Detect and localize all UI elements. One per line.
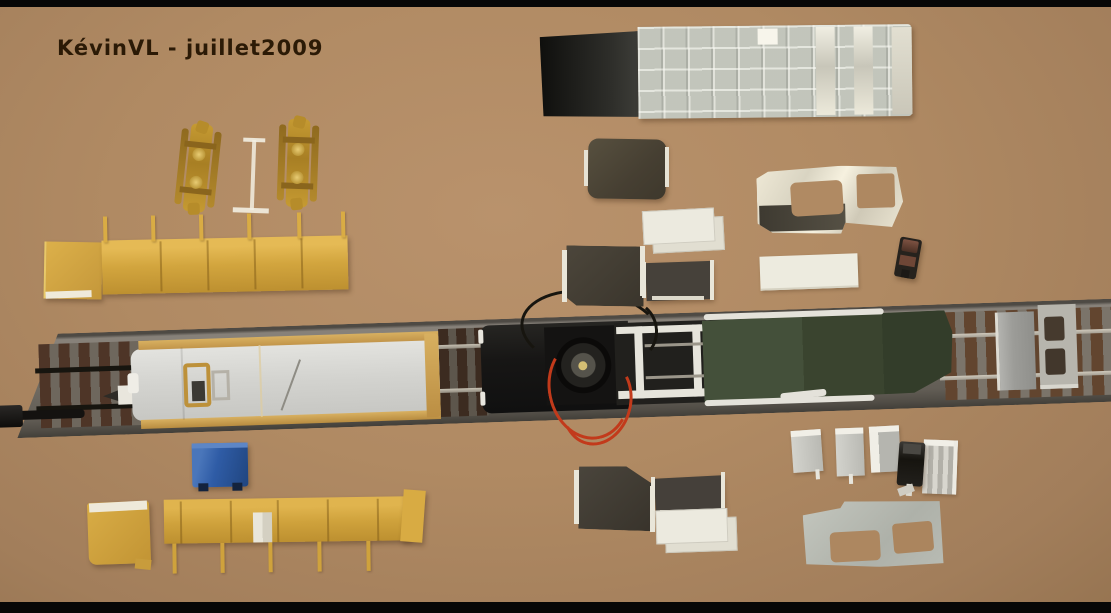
white-styrene-stack	[642, 207, 728, 257]
gauge-stem	[250, 140, 256, 210]
fence-panel-seam	[206, 240, 209, 290]
silver-cab-side	[756, 164, 904, 236]
roof-panel	[540, 24, 913, 120]
fence-post	[199, 214, 204, 240]
fence-post	[366, 541, 370, 571]
white-edge-strip	[652, 296, 704, 300]
wagon-floor	[138, 331, 441, 429]
bogie-coupler	[290, 197, 303, 210]
chassis-white-trim	[480, 392, 485, 406]
wagon-handle-opening	[192, 381, 206, 401]
white-gauge-mark	[232, 129, 275, 222]
fence-strip-bottom	[164, 496, 411, 543]
white-edge-strip	[721, 472, 725, 512]
fence-white-edge	[89, 501, 147, 513]
fence-post	[297, 212, 302, 238]
detail-part-black	[896, 441, 925, 487]
cab-window-cutout	[790, 180, 844, 217]
fence-panel-seam	[277, 500, 280, 542]
gray-platform-piece	[998, 311, 1037, 390]
white-edge-strip	[574, 470, 579, 524]
roof-bright-tile	[758, 28, 778, 44]
photo-canvas: KévinVL - juillet2009	[0, 0, 1111, 613]
cab-window-cutout	[892, 521, 934, 554]
wagon-silver-bracket	[211, 370, 230, 401]
fence-panel-seam	[253, 239, 256, 289]
masking-tape-end	[424, 333, 441, 417]
white-edge-strip	[710, 260, 714, 300]
dark-panel-offcut	[565, 245, 644, 306]
green-deck-panel	[702, 310, 955, 402]
wagon-nose-tip	[127, 373, 139, 393]
white-styrene-card	[642, 207, 716, 245]
bogie-body	[285, 119, 310, 208]
blue-block-top-edge	[192, 443, 248, 449]
roof-silver-band	[816, 27, 836, 115]
top-border-bar	[0, 0, 1111, 7]
white-styrene-plate	[759, 253, 858, 290]
step-bracket	[922, 439, 958, 494]
fence-post	[317, 542, 321, 572]
fence-panel-seam	[327, 499, 330, 541]
detail-part-cap	[903, 443, 922, 454]
step-bracket	[835, 428, 865, 477]
fence-post	[103, 216, 108, 242]
detail-part-leg	[901, 269, 910, 278]
white-edge-strip	[651, 477, 655, 511]
detail-part-red	[894, 236, 923, 279]
fence-strip-top	[101, 235, 348, 294]
detail-part-cap	[901, 239, 919, 254]
step-white-edge	[869, 425, 899, 433]
dark-roof-insert	[587, 138, 666, 199]
fence-panel-seam	[180, 501, 183, 543]
step-white-edge	[952, 440, 958, 494]
gray-cab-side	[802, 500, 943, 568]
fence-panel-seam	[159, 241, 162, 291]
fence-end-block-top	[44, 241, 103, 299]
roof-silver-band	[854, 26, 874, 114]
fence-panel-seam	[377, 499, 380, 541]
bogie-right	[274, 118, 321, 207]
fence-post	[341, 211, 346, 237]
chassis-white-trim	[478, 330, 483, 344]
blue-block-foot	[198, 483, 208, 491]
silver-grid-frame	[1038, 304, 1079, 389]
grid-frame-hole	[1045, 348, 1066, 375]
fence-post	[151, 215, 156, 241]
buffer-head	[0, 405, 23, 428]
bottom-border-bar	[0, 602, 1111, 613]
fence-white-insert	[253, 512, 272, 542]
step-bracket	[869, 425, 901, 473]
white-edge-strip	[584, 150, 588, 186]
cab-window-cutout	[856, 173, 895, 208]
fence-post	[247, 213, 252, 239]
step-leg	[815, 469, 820, 479]
white-edge-strip	[562, 250, 567, 302]
step-bracket	[791, 429, 824, 473]
fence-strip-end-flare	[400, 489, 426, 542]
white-edge-strip	[665, 147, 669, 187]
cab-window-cutout	[829, 530, 881, 563]
fence-white-edge	[45, 290, 91, 299]
fence-post	[220, 543, 224, 573]
watermark-text: KévinVL - juillet2009	[57, 36, 323, 60]
step-leg	[849, 474, 853, 484]
fence-end-block-bottom	[87, 501, 151, 565]
grid-frame-hole	[1044, 316, 1065, 341]
white-styrene-stack	[655, 508, 741, 557]
fence-panel-seam	[230, 501, 233, 543]
dark-panel-offcut	[577, 465, 655, 532]
bogie-coupler	[188, 203, 200, 215]
blue-component-block	[192, 443, 249, 488]
fence-post	[268, 542, 272, 572]
bogie-left	[172, 122, 225, 214]
white-styrene-card	[655, 508, 728, 544]
white-edge-strip	[642, 262, 646, 298]
roof-panel-dark-end	[540, 31, 643, 118]
fence-foot	[135, 558, 152, 570]
fence-post	[172, 544, 176, 574]
roof-end-cap	[892, 27, 913, 114]
step-white-edge	[835, 428, 863, 435]
detail-part-band	[899, 255, 916, 268]
step-white-edge	[791, 429, 821, 437]
fence-panel-seam	[300, 238, 303, 288]
blue-block-foot	[232, 483, 242, 491]
wagon-floor-plate	[131, 339, 441, 421]
